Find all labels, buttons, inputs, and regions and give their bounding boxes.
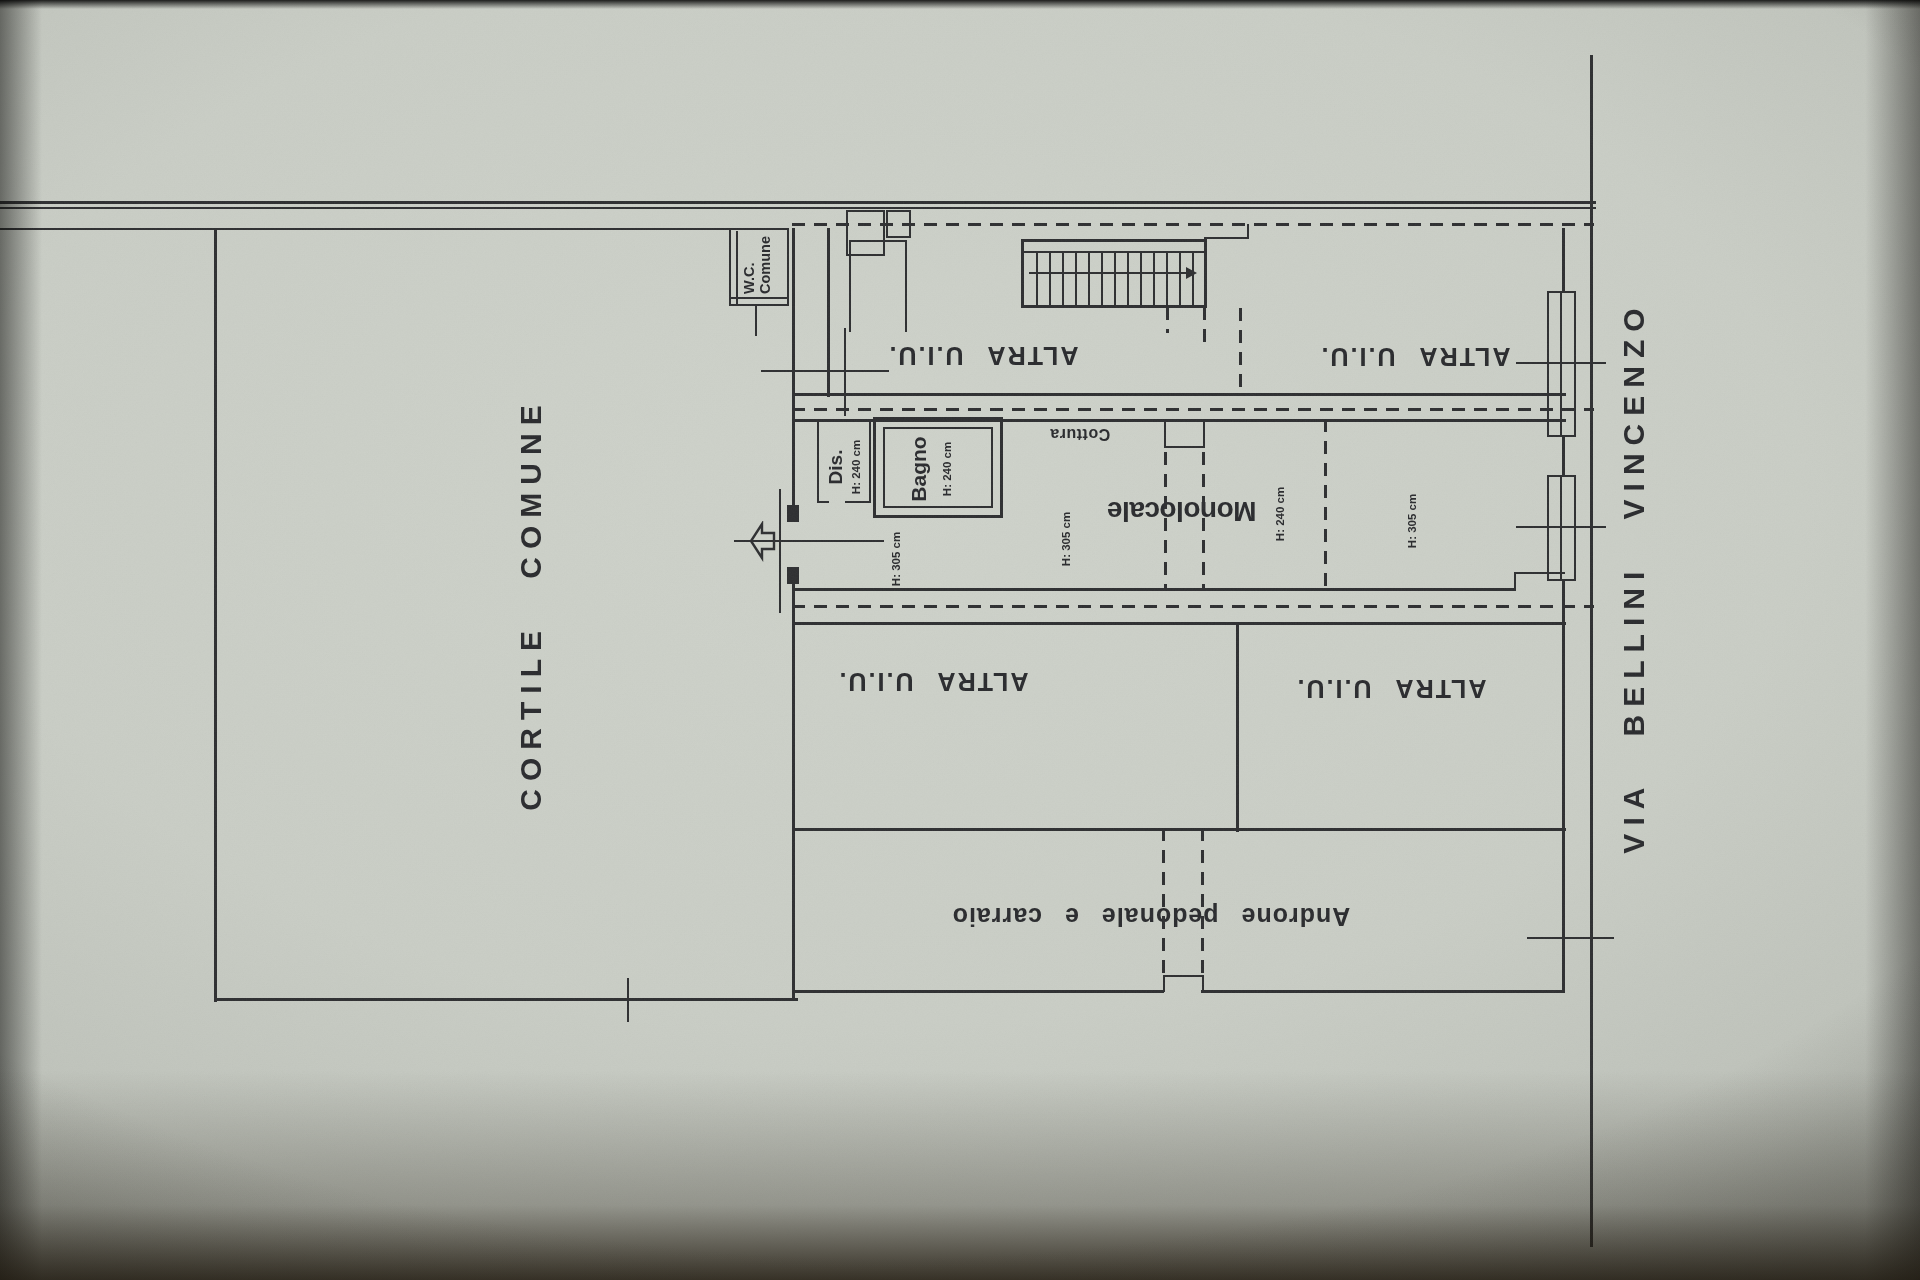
room-label-altra-top-left: ALTRA U.I.U. <box>888 341 1079 370</box>
balcony-box-2 <box>886 210 911 238</box>
wall-segment <box>787 567 799 584</box>
wall-segment <box>214 998 798 1001</box>
wall-segment <box>1562 228 1565 292</box>
wall-segment <box>779 489 781 613</box>
height-label-right-room: H: 305 cm <box>1406 494 1418 548</box>
floor-plan: CORTILE COMUNE VIA BELLINI VINCENZO W.C.… <box>0 0 1920 1280</box>
wall-segment <box>792 622 1566 625</box>
wall-segment <box>1562 579 1565 993</box>
dashed-boundary-line <box>1239 308 1242 394</box>
wall-segment <box>792 588 1516 591</box>
dashed-boundary-line <box>1201 828 1204 976</box>
height-label-mid-room: H: 240 cm <box>1274 487 1286 541</box>
room-label-androne: Androne pedonale e carraio <box>952 902 1351 931</box>
dashed-boundary-line <box>1202 452 1205 590</box>
height-label-monolocale: H: 305 cm <box>1060 512 1072 566</box>
dashed-boundary-line <box>1166 307 1169 333</box>
wall-segment <box>1163 975 1204 977</box>
courtyard-label: CORTILE COMUNE <box>514 397 548 810</box>
dashed-boundary-line <box>792 605 1594 608</box>
wall-segment <box>1202 975 1204 992</box>
room-dis <box>817 419 871 503</box>
room-label-altra-bottom-left: ALTRA U.I.U. <box>838 667 1029 696</box>
wc-comune-room <box>729 228 789 306</box>
wall-segment <box>792 393 1566 396</box>
wall-segment <box>787 505 799 522</box>
wall-segment <box>1514 572 1516 591</box>
staircase <box>1021 239 1207 308</box>
wall-segment <box>1204 237 1249 239</box>
window-middle <box>1547 475 1576 581</box>
wall-segment <box>1247 224 1249 239</box>
room-label-altra-top-right: ALTRA U.I.U. <box>1320 342 1511 371</box>
window-upper <box>1547 291 1576 437</box>
wall-segment <box>792 990 1164 993</box>
wall-segment <box>214 228 217 1002</box>
dashed-boundary-line <box>792 223 1594 226</box>
room-bagno-inner <box>883 427 993 508</box>
room-label-altra-bottom-right: ALTRA U.I.U. <box>1296 674 1487 703</box>
floorplan-photo: CORTILE COMUNE VIA BELLINI VINCENZO W.C.… <box>0 0 1920 1280</box>
balcony-box-1 <box>846 210 885 256</box>
wall-segment <box>792 828 1566 831</box>
wall-segment <box>844 328 846 416</box>
wall-segment <box>1201 990 1565 993</box>
dashed-boundary-line <box>792 408 1594 411</box>
wall-segment <box>1236 622 1239 832</box>
wall-segment <box>0 228 736 230</box>
dashed-boundary-line <box>1162 828 1165 976</box>
wall-segment <box>755 306 757 336</box>
wall-segment <box>1562 437 1565 476</box>
wall-segment <box>1164 419 1166 448</box>
wall-segment <box>1164 446 1205 448</box>
height-label-corridor: H: 305 cm <box>890 532 902 586</box>
room-label-cottura: Cottura <box>1050 425 1110 443</box>
wall-segment <box>0 207 1596 209</box>
wall-segment <box>734 540 884 542</box>
wall-segment <box>761 370 889 372</box>
dashed-boundary-line <box>1324 419 1327 591</box>
wall-segment <box>792 584 795 1000</box>
wall-segment <box>0 201 1596 204</box>
room-label-monolocale: Monolocale <box>1107 495 1256 527</box>
wall-segment <box>627 978 629 1022</box>
wall-segment <box>1163 975 1165 992</box>
street-label: VIA BELLINI VINCENZO <box>1617 300 1651 853</box>
wall-segment <box>1203 419 1205 448</box>
dashed-boundary-line <box>1203 307 1206 349</box>
wall-segment <box>1590 55 1593 1247</box>
wall-segment <box>1527 937 1614 939</box>
dashed-boundary-line <box>1164 452 1167 590</box>
wall-segment <box>792 228 795 508</box>
